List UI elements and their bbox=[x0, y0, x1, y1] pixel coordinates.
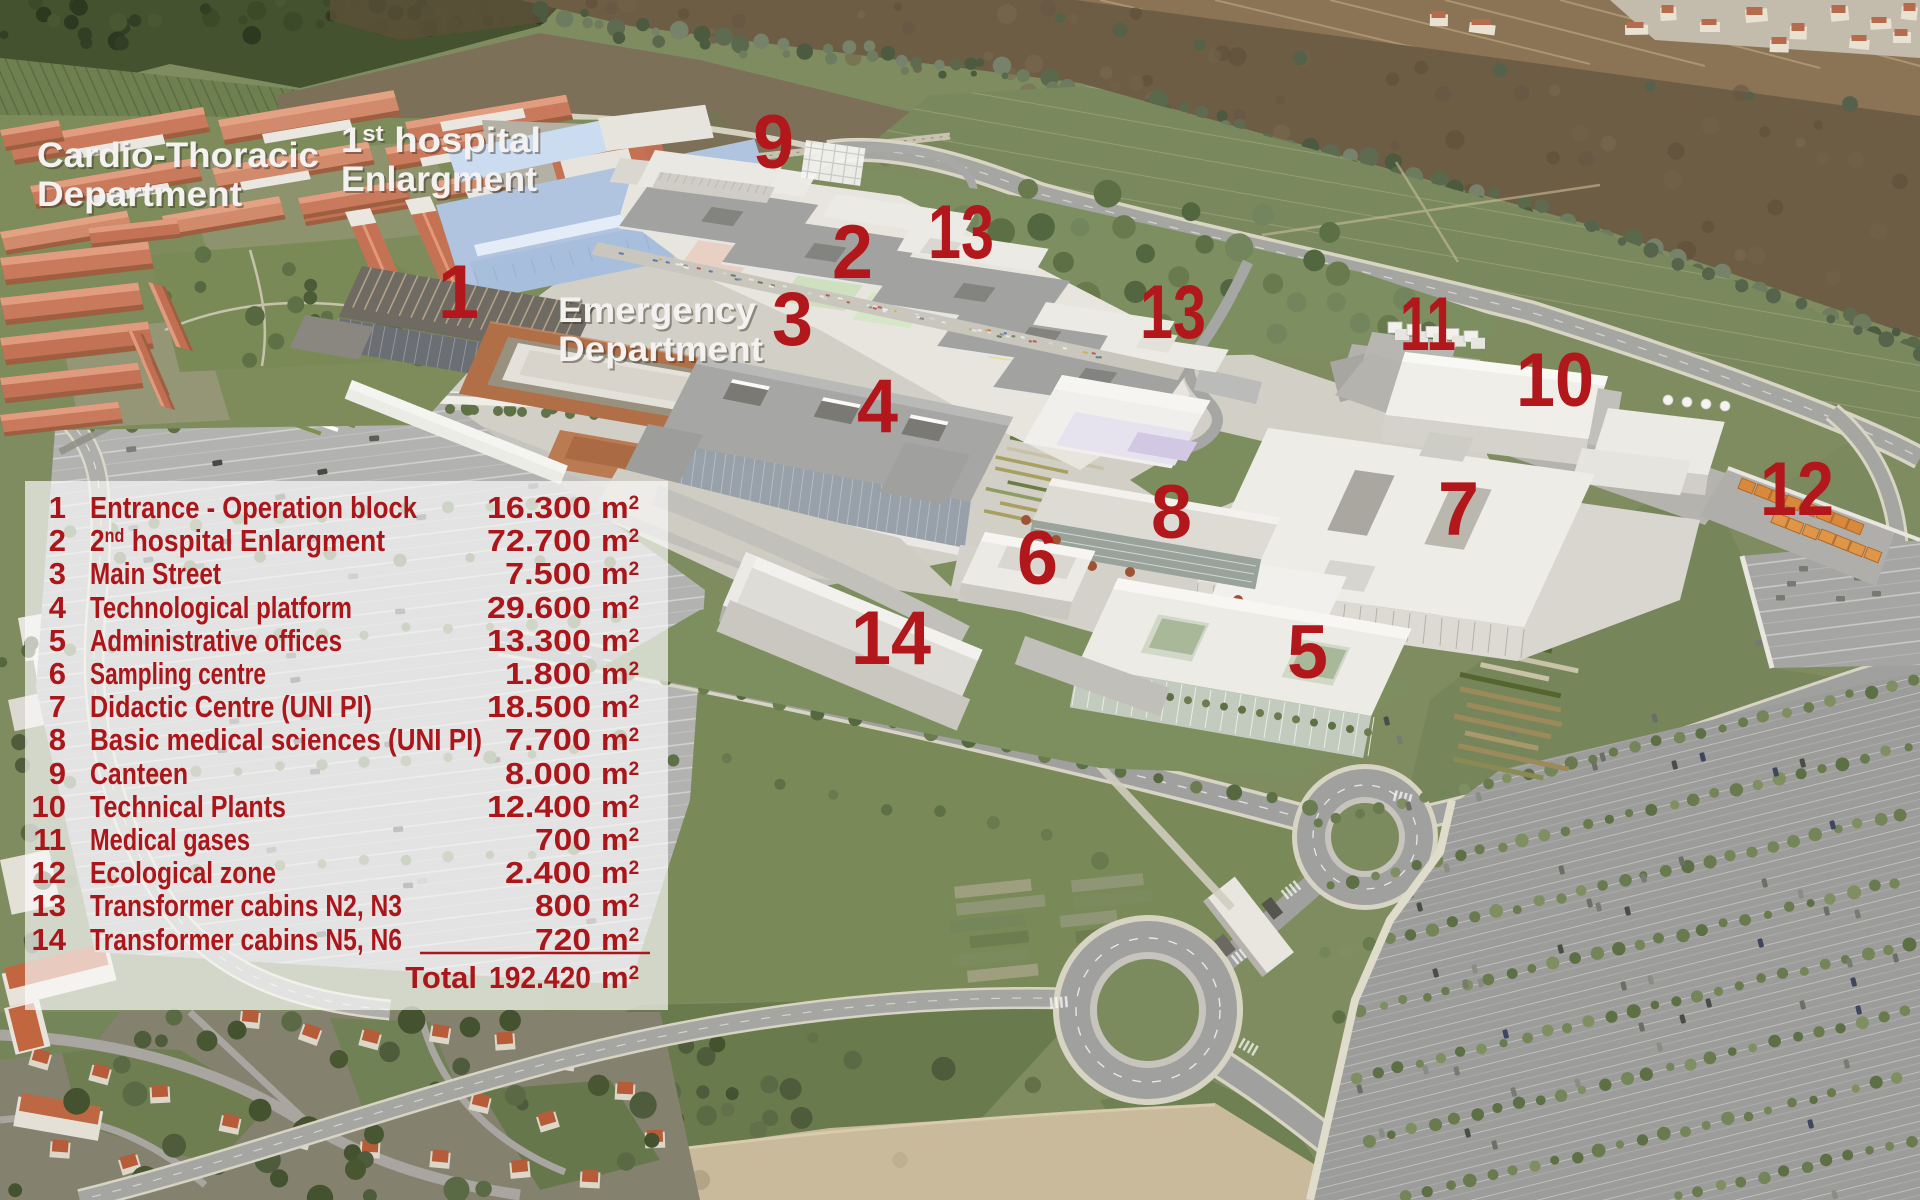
svg-text:18.500: 18.500 bbox=[487, 689, 591, 724]
svg-text:5: 5 bbox=[49, 623, 66, 658]
svg-text:9: 9 bbox=[753, 100, 794, 185]
svg-text:16.300: 16.300 bbox=[487, 490, 591, 525]
svg-text:12: 12 bbox=[1760, 447, 1834, 532]
svg-text:1: 1 bbox=[438, 250, 479, 335]
svg-text:12: 12 bbox=[32, 855, 66, 890]
svg-text:7.700: 7.700 bbox=[505, 722, 591, 757]
svg-text:2: 2 bbox=[49, 523, 66, 558]
svg-text:14: 14 bbox=[851, 596, 931, 681]
svg-text:8.000: 8.000 bbox=[505, 756, 591, 791]
svg-text:Emergency: Emergency bbox=[558, 291, 757, 330]
svg-text:Department: Department bbox=[37, 175, 242, 214]
svg-text:8: 8 bbox=[1151, 470, 1192, 555]
svg-text:Canteen: Canteen bbox=[90, 756, 188, 791]
svg-text:4: 4 bbox=[49, 590, 67, 625]
svg-text:8: 8 bbox=[49, 722, 66, 757]
svg-text:Technological platform: Technological platform bbox=[90, 590, 352, 625]
svg-text:Didactic Centre (UNI PI): Didactic Centre (UNI PI) bbox=[90, 689, 372, 724]
svg-text:13: 13 bbox=[928, 190, 994, 275]
svg-text:10: 10 bbox=[32, 789, 66, 824]
svg-text:Cardio-Thoracic: Cardio-Thoracic bbox=[37, 136, 319, 175]
svg-text:7: 7 bbox=[1438, 467, 1479, 552]
svg-text:Basic medical sciences (UNI PI: Basic medical sciences (UNI PI) bbox=[90, 722, 482, 757]
svg-text:2: 2 bbox=[832, 210, 873, 295]
svg-text:3: 3 bbox=[772, 277, 813, 362]
svg-text:2nd hospital Enlargment: 2nd hospital Enlargment bbox=[90, 523, 385, 558]
svg-text:192.420: 192.420 bbox=[489, 960, 591, 995]
svg-text:4: 4 bbox=[857, 364, 898, 449]
svg-text:800: 800 bbox=[535, 888, 591, 923]
svg-text:13: 13 bbox=[1140, 270, 1206, 355]
svg-text:14: 14 bbox=[32, 922, 67, 957]
svg-text:29.600: 29.600 bbox=[487, 590, 591, 625]
svg-text:9: 9 bbox=[49, 756, 66, 791]
svg-text:Enlargment: Enlargment bbox=[341, 160, 537, 199]
svg-text:13.300: 13.300 bbox=[487, 623, 591, 658]
svg-text:13: 13 bbox=[32, 888, 66, 923]
svg-text:Medical gases: Medical gases bbox=[90, 822, 250, 857]
svg-text:Transformer cabins N2, N3: Transformer cabins N2, N3 bbox=[90, 888, 402, 923]
svg-text:Entrance - Operation block: Entrance - Operation block bbox=[90, 490, 418, 525]
svg-text:6: 6 bbox=[49, 656, 66, 691]
svg-text:7: 7 bbox=[49, 689, 66, 724]
svg-text:Sampling centre: Sampling centre bbox=[90, 656, 266, 691]
svg-text:Total: Total bbox=[405, 960, 477, 995]
svg-text:6: 6 bbox=[1017, 516, 1058, 601]
svg-text:7.500: 7.500 bbox=[505, 556, 591, 591]
svg-text:11: 11 bbox=[1400, 282, 1456, 367]
svg-text:Technical Plants: Technical Plants bbox=[90, 789, 286, 824]
svg-text:2.400: 2.400 bbox=[505, 855, 591, 890]
svg-text:12.400: 12.400 bbox=[487, 789, 591, 824]
svg-text:Administrative offices: Administrative offices bbox=[90, 623, 342, 658]
svg-text:700: 700 bbox=[535, 822, 591, 857]
svg-text:11: 11 bbox=[33, 822, 66, 857]
svg-text:10: 10 bbox=[1516, 338, 1594, 423]
svg-text:5: 5 bbox=[1287, 610, 1328, 695]
svg-text:1.800: 1.800 bbox=[505, 656, 591, 691]
svg-text:1: 1 bbox=[49, 490, 66, 525]
svg-text:72.700: 72.700 bbox=[487, 523, 591, 558]
svg-text:Ecological zone: Ecological zone bbox=[90, 855, 276, 890]
svg-text:Main Street: Main Street bbox=[90, 556, 221, 591]
svg-text:Transformer cabins N5, N6: Transformer cabins N5, N6 bbox=[90, 922, 402, 957]
svg-text:3: 3 bbox=[49, 556, 66, 591]
svg-text:Department: Department bbox=[558, 330, 763, 369]
